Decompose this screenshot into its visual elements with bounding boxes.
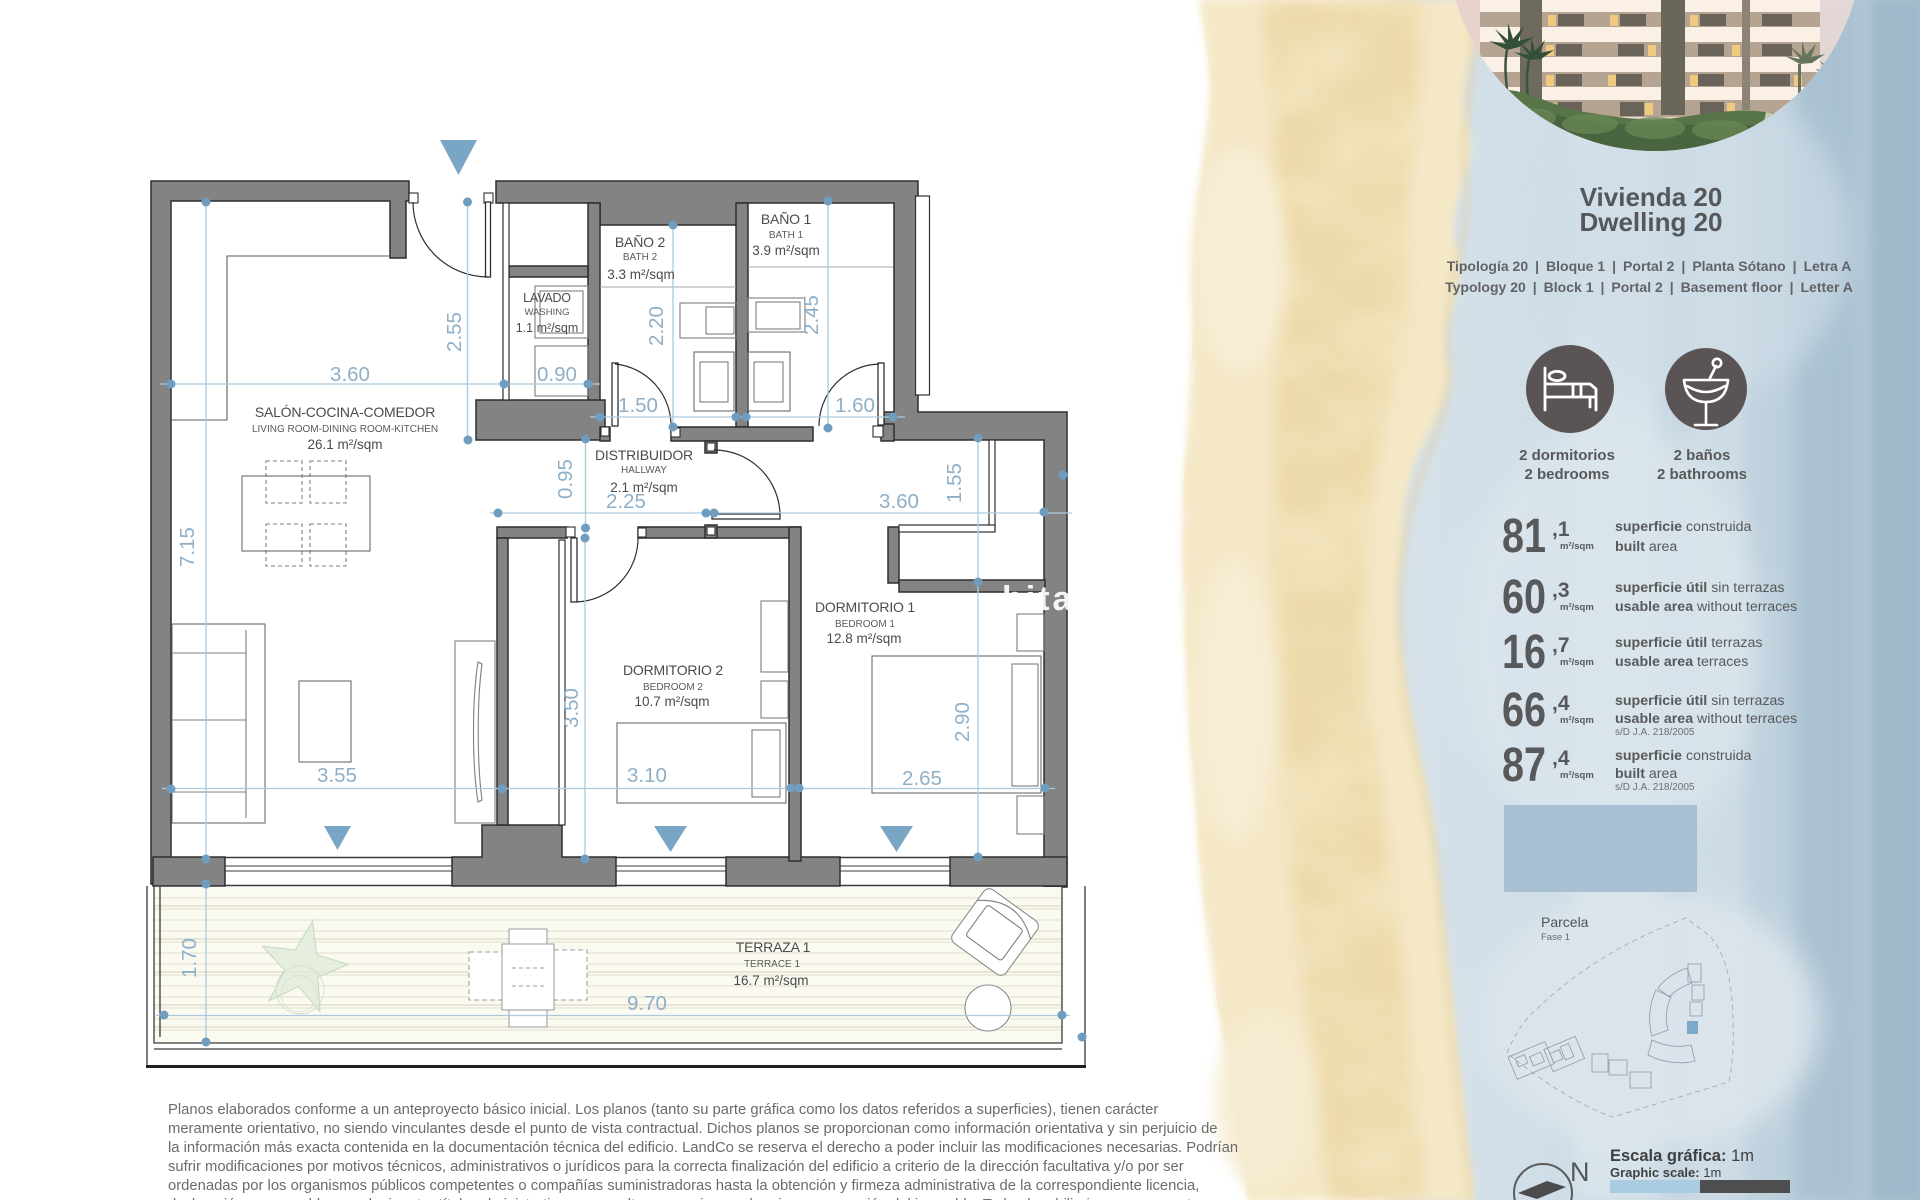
svg-text:81: 81 [1502, 510, 1546, 563]
svg-text:2.45: 2.45 [800, 295, 823, 335]
svg-text:1.1 m²/sqm: 1.1 m²/sqm [516, 321, 579, 335]
svg-text:BAÑO 2: BAÑO 2 [615, 234, 666, 250]
svg-text:LAVADO: LAVADO [523, 291, 571, 305]
svg-text:66: 66 [1502, 684, 1546, 737]
svg-text:0.90: 0.90 [537, 363, 577, 386]
svg-text:s/D J.A. 218/2005: s/D J.A. 218/2005 [1615, 727, 1695, 738]
svg-text:N: N [1570, 1157, 1590, 1187]
svg-text:usable area terraces: usable area terraces [1615, 654, 1748, 670]
svg-text:3.9 m²/sqm: 3.9 m²/sqm [752, 243, 820, 258]
svg-text:Typology 20 | Block 1 | Portal: Typology 20 | Block 1 | Portal 2 | Basem… [1445, 279, 1853, 295]
svg-text:built area: built area [1615, 766, 1677, 782]
svg-text:Planos elaborados conforme a u: Planos elaborados conforme a un anteproy… [168, 1102, 1158, 1118]
svg-text:LIVING ROOM-DINING ROOM-KITCHE: LIVING ROOM-DINING ROOM-KITCHEN [252, 424, 438, 435]
svg-text:BAÑO 1: BAÑO 1 [761, 211, 812, 227]
svg-text:superficie útil sin terrazas: superficie útil sin terrazas [1615, 693, 1785, 709]
svg-text:,1: ,1 [1552, 518, 1570, 541]
svg-text:2.55: 2.55 [443, 312, 466, 352]
svg-text:m²/sqm: m²/sqm [1560, 657, 1594, 668]
svg-text:2 dormitorios: 2 dormitorios [1519, 447, 1615, 464]
svg-text:2.65: 2.65 [902, 767, 942, 790]
svg-text:m²/sqm: m²/sqm [1560, 770, 1594, 781]
svg-text:16: 16 [1502, 626, 1546, 679]
svg-text:meramente orientativo, no sien: meramente orientativo, no siendo vincula… [168, 1121, 1218, 1137]
svg-text:TERRAZA 1: TERRAZA 1 [736, 939, 811, 955]
svg-text:m²/sqm: m²/sqm [1560, 715, 1594, 726]
svg-text:m²/sqm: m²/sqm [1560, 541, 1594, 552]
svg-text:Tipología 20 | Bloque 1 | Port: Tipología 20 | Bloque 1 | Portal 2 | Pla… [1447, 258, 1852, 274]
svg-text:2 bathrooms: 2 bathrooms [1657, 466, 1747, 483]
svg-text:,4: ,4 [1552, 747, 1570, 770]
svg-text:BEDROOM 1: BEDROOM 1 [835, 619, 895, 630]
svg-text:0.95: 0.95 [554, 459, 577, 499]
svg-text:usable area without terraces: usable area without terraces [1615, 711, 1797, 727]
svg-text:DISTRIBUIDOR: DISTRIBUIDOR [595, 447, 693, 463]
svg-text:3.50: 3.50 [560, 688, 583, 728]
svg-text:Escala gráfica: 1m: Escala gráfica: 1m [1610, 1147, 1754, 1165]
svg-text:2 bedrooms: 2 bedrooms [1524, 466, 1609, 483]
svg-text:60: 60 [1502, 571, 1546, 624]
svg-text:BATH 1: BATH 1 [769, 230, 804, 241]
svg-text:superficie útil terrazas: superficie útil terrazas [1615, 635, 1762, 651]
svg-text:superficie construida: superficie construida [1615, 748, 1752, 764]
svg-text:DORMITORIO 2: DORMITORIO 2 [623, 662, 723, 678]
svg-text:hitat: hitat [1002, 580, 1089, 618]
svg-text:WASHING: WASHING [524, 307, 569, 318]
svg-text:1.50: 1.50 [618, 394, 658, 417]
svg-text:3.3 m²/sqm: 3.3 m²/sqm [607, 267, 675, 282]
svg-text:Fase 1: Fase 1 [1541, 932, 1570, 943]
svg-text:s/D J.A. 218/2005: s/D J.A. 218/2005 [1615, 782, 1695, 793]
svg-text:superficie construida: superficie construida [1615, 519, 1752, 535]
svg-text:3.60: 3.60 [879, 490, 919, 513]
svg-text:1.60: 1.60 [835, 394, 875, 417]
svg-text:10.7 m²/sqm: 10.7 m²/sqm [634, 694, 709, 709]
svg-text:Parcela: Parcela [1541, 914, 1589, 930]
svg-text:BEDROOM 2: BEDROOM 2 [643, 682, 703, 693]
svg-text:2 baños: 2 baños [1674, 447, 1731, 464]
svg-text:sufrir modificaciones por moti: sufrir modificaciones por motivos técnic… [168, 1159, 1184, 1175]
svg-text:7.15: 7.15 [176, 527, 199, 567]
svg-text:,7: ,7 [1552, 634, 1570, 657]
svg-text:built area: built area [1615, 539, 1677, 555]
svg-text:1.70: 1.70 [178, 938, 201, 978]
svg-text:16.7 m²/sqm: 16.7 m²/sqm [733, 973, 808, 988]
svg-text:9.70: 9.70 [627, 992, 667, 1015]
svg-text:2.20: 2.20 [645, 306, 668, 346]
svg-text:2.90: 2.90 [951, 702, 974, 742]
svg-text:Graphic scale: 1m: Graphic scale: 1m [1610, 1165, 1721, 1180]
svg-text:ordenadas por los organismos p: ordenadas por los organismos públicos co… [168, 1178, 1199, 1194]
svg-text:3.55: 3.55 [317, 764, 357, 787]
svg-text:2.1 m²/sqm: 2.1 m²/sqm [610, 480, 678, 495]
svg-text:BATH 2: BATH 2 [623, 252, 658, 263]
svg-text:DORMITORIO 1: DORMITORIO 1 [815, 599, 915, 615]
svg-text:usable area without terraces: usable area without terraces [1615, 599, 1797, 615]
svg-text:TERRACE 1: TERRACE 1 [744, 959, 801, 970]
svg-text:superficie útil sin terrazas: superficie útil sin terrazas [1615, 580, 1785, 596]
svg-text:3.60: 3.60 [330, 363, 370, 386]
svg-text:SALÓN-COCINA-COMEDOR: SALÓN-COCINA-COMEDOR [255, 404, 435, 420]
svg-text:,4: ,4 [1552, 692, 1570, 715]
svg-text:HALLWAY: HALLWAY [621, 465, 667, 476]
svg-text:,3: ,3 [1552, 579, 1570, 602]
svg-text:m²/sqm: m²/sqm [1560, 602, 1594, 613]
svg-text:26.1 m²/sqm: 26.1 m²/sqm [307, 437, 382, 452]
svg-text:87: 87 [1502, 739, 1546, 792]
svg-text:la información más exacta cont: la información más exacta contenida en l… [168, 1140, 1238, 1156]
svg-text:1.55: 1.55 [943, 463, 966, 503]
svg-text:Dwelling 20: Dwelling 20 [1579, 207, 1722, 237]
svg-text:3.10: 3.10 [627, 764, 667, 787]
svg-text:12.8 m²/sqm: 12.8 m²/sqm [826, 631, 901, 646]
